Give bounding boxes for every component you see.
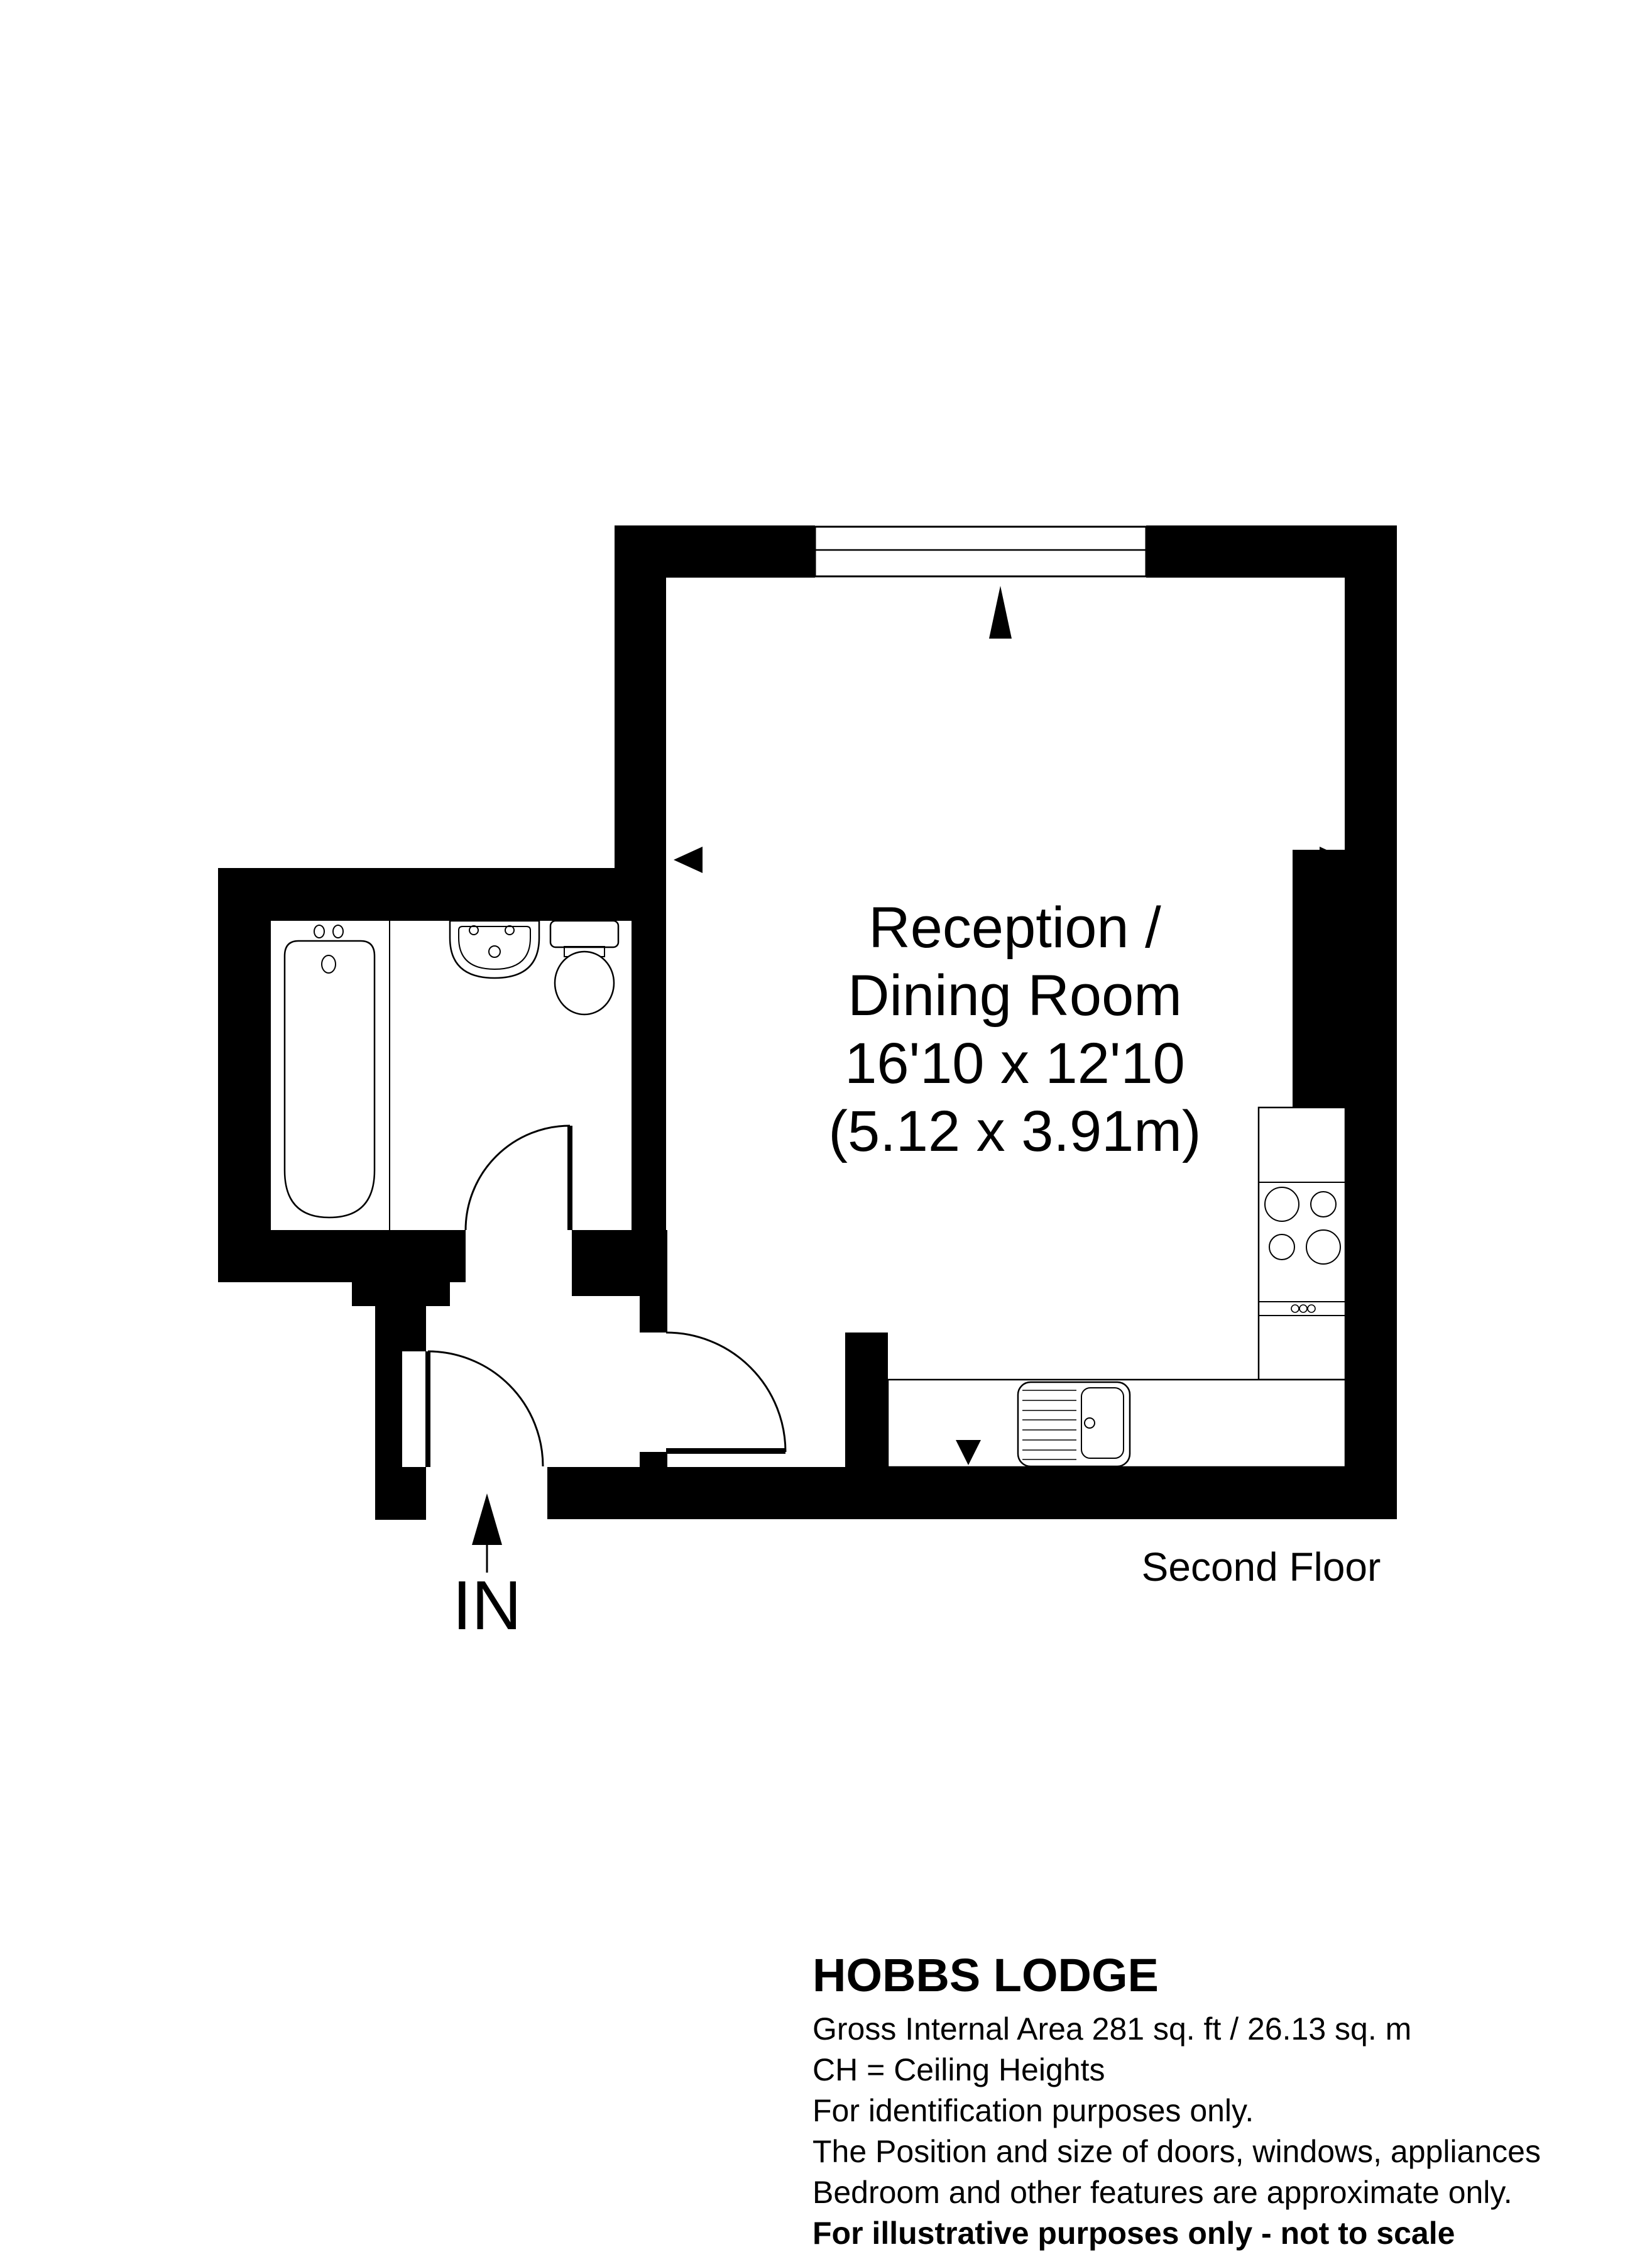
- bathtub: [285, 925, 375, 1217]
- room-label-line: (5.12 x 3.91m): [828, 1099, 1201, 1163]
- interior-door: [666, 1333, 785, 1454]
- floor-label: Second Floor: [1142, 1544, 1381, 1590]
- wall-segment: [402, 1467, 426, 1520]
- footer-line: CH = Ceiling Heights: [812, 2052, 1105, 2087]
- wall-segment: [218, 1230, 466, 1282]
- room-label-line: 16'10 x 12'10: [845, 1031, 1185, 1096]
- wall-segment: [640, 1296, 667, 1333]
- interior-door-leaf: [666, 1448, 785, 1454]
- toilet-cistern: [550, 921, 618, 947]
- entry-door: [425, 1351, 543, 1467]
- footer-disclaimer: For illustrative purposes only - not to …: [812, 2216, 1455, 2251]
- footer-line: The Position and size of doors, windows,…: [812, 2134, 1541, 2169]
- window: [815, 527, 1146, 576]
- wall-segment: [352, 1282, 450, 1306]
- room-label: Reception / Dining Room 16'10 x 12'10 (5…: [828, 896, 1201, 1163]
- bathroom-door-swing-arc: [466, 1126, 570, 1230]
- footer: HOBBS LODGE Gross Internal Area 281 sq. …: [812, 1949, 1541, 2251]
- wall-segment: [1293, 850, 1397, 1107]
- footer-line: Gross Internal Area 281 sq. ft / 26.13 s…: [812, 2011, 1411, 2047]
- kitchen-counter-tall: [1259, 1107, 1345, 1380]
- wall-segment: [547, 1467, 1397, 1519]
- bath-tap: [314, 925, 324, 938]
- footer-title: HOBBS LODGE: [812, 1949, 1159, 2001]
- window-arrow-icon: [989, 586, 1012, 639]
- room-label-line: Reception /: [868, 896, 1161, 960]
- wall-segment: [640, 1452, 667, 1467]
- bathroom-sink: [450, 921, 539, 978]
- toilet-bowl: [555, 952, 614, 1014]
- wall-segment: [572, 1230, 667, 1296]
- floorplan-page: IN Reception / Dining Room 16'10 x 12'10…: [0, 0, 1652, 2264]
- room-label-line: Dining Room: [848, 964, 1182, 1028]
- kitchen-sink: [1018, 1382, 1130, 1466]
- floorplan-canvas: IN Reception / Dining Room 16'10 x 12'10…: [0, 0, 1652, 2264]
- toilet: [550, 921, 618, 1014]
- bathroom-door: [466, 1126, 572, 1230]
- footer-line: Bedroom and other features are approxima…: [812, 2175, 1513, 2210]
- interior-door-swing-arc: [666, 1333, 785, 1452]
- entry-door-swing-arc: [428, 1351, 543, 1466]
- bathroom-door-leaf: [567, 1126, 572, 1230]
- wall-segment: [615, 525, 666, 921]
- wall-segment: [218, 868, 271, 1282]
- wall-segment: [375, 1351, 402, 1520]
- wall-segment: [632, 921, 666, 1230]
- in-arrow-icon: [472, 1493, 502, 1545]
- kitchen-sink-unit: [1018, 1382, 1130, 1466]
- window-frame: [815, 527, 1146, 576]
- wall-segment: [375, 1306, 426, 1351]
- left-wall-arrow-icon: [674, 847, 703, 873]
- bath-tap: [333, 925, 343, 938]
- entry-door-leaf: [425, 1351, 430, 1467]
- footer-line: For identification purposes only.: [812, 2093, 1254, 2128]
- entrance-marker: IN: [452, 1493, 522, 1644]
- walls: [218, 525, 1397, 1520]
- bathtub-outline: [285, 941, 375, 1217]
- wall-segment: [218, 868, 666, 921]
- entrance-label: IN: [452, 1567, 522, 1644]
- wall-segment: [845, 1333, 888, 1467]
